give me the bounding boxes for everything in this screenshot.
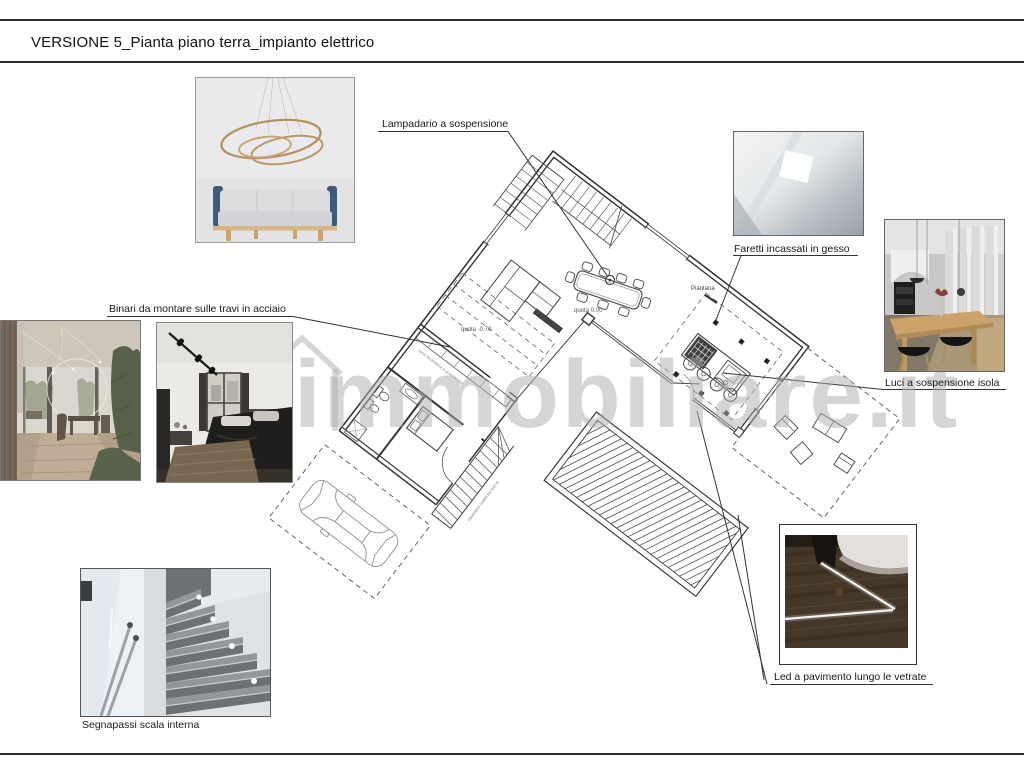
svg-text:quota 0.00: quota 0.00 — [574, 308, 603, 314]
svg-text:quota -0.70: quota -0.70 — [461, 327, 492, 333]
svg-text:Piantana: Piantana — [691, 286, 715, 292]
svg-text:immobiliare.it: immobiliare.it — [294, 341, 960, 448]
